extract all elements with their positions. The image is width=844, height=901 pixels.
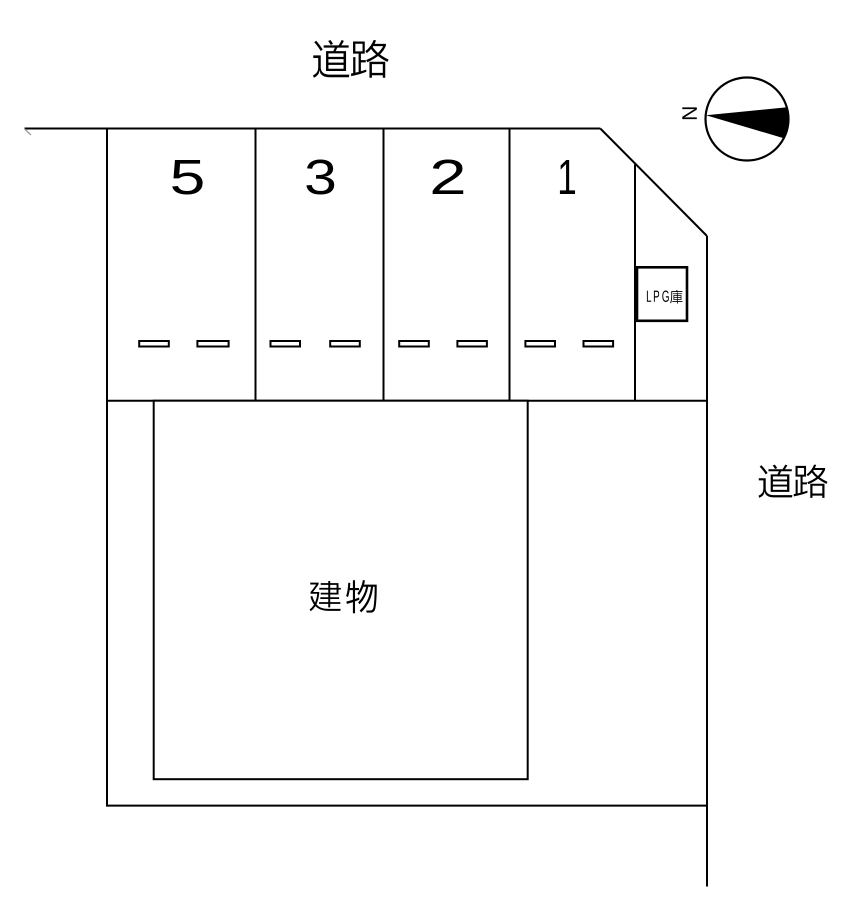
- svg-text:5: 5: [170, 150, 206, 205]
- svg-text:3: 3: [304, 150, 337, 205]
- svg-text:1: 1: [557, 150, 577, 205]
- svg-text:2: 2: [429, 151, 466, 205]
